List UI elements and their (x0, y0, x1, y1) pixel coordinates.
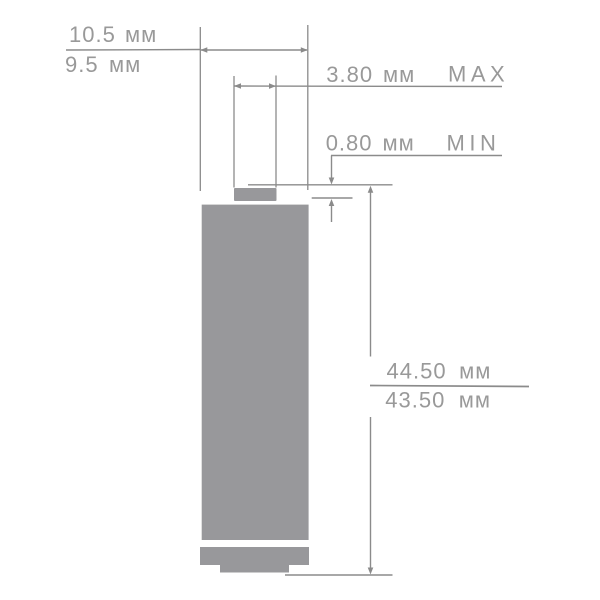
svg-text:43.50мм: 43.50мм (385, 388, 491, 413)
svg-text:3.80мм: 3.80мм (326, 62, 415, 87)
svg-text:MAX: MAX (448, 62, 509, 87)
svg-text:0.80мм: 0.80мм (326, 131, 415, 156)
svg-text:44.50мм: 44.50мм (387, 359, 492, 384)
svg-text:MIN: MIN (447, 131, 501, 156)
svg-text:10.5мм: 10.5мм (69, 22, 157, 47)
